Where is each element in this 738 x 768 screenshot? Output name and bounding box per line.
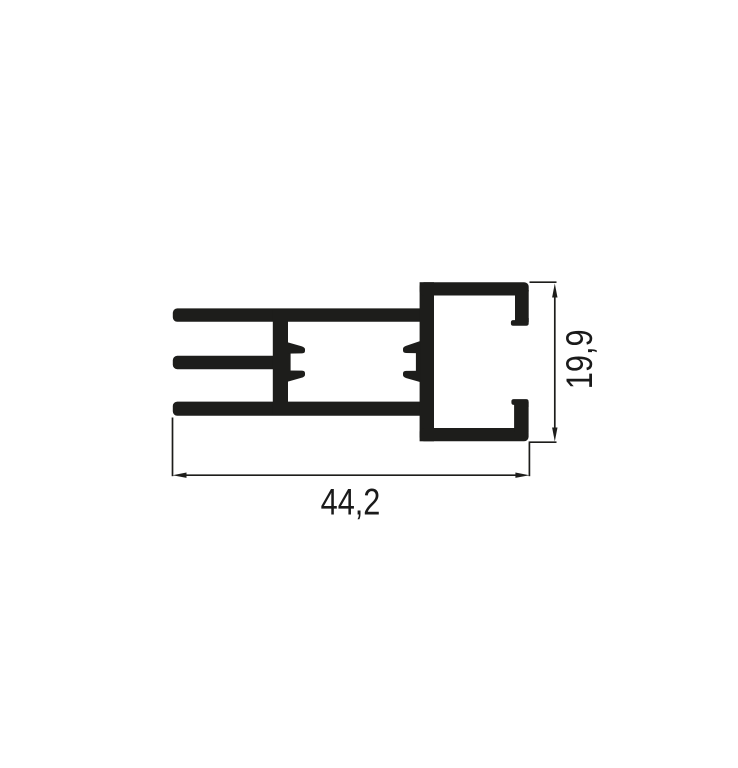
svg-text:19,9: 19,9 [559, 329, 600, 389]
svg-text:44,2: 44,2 [321, 482, 381, 523]
